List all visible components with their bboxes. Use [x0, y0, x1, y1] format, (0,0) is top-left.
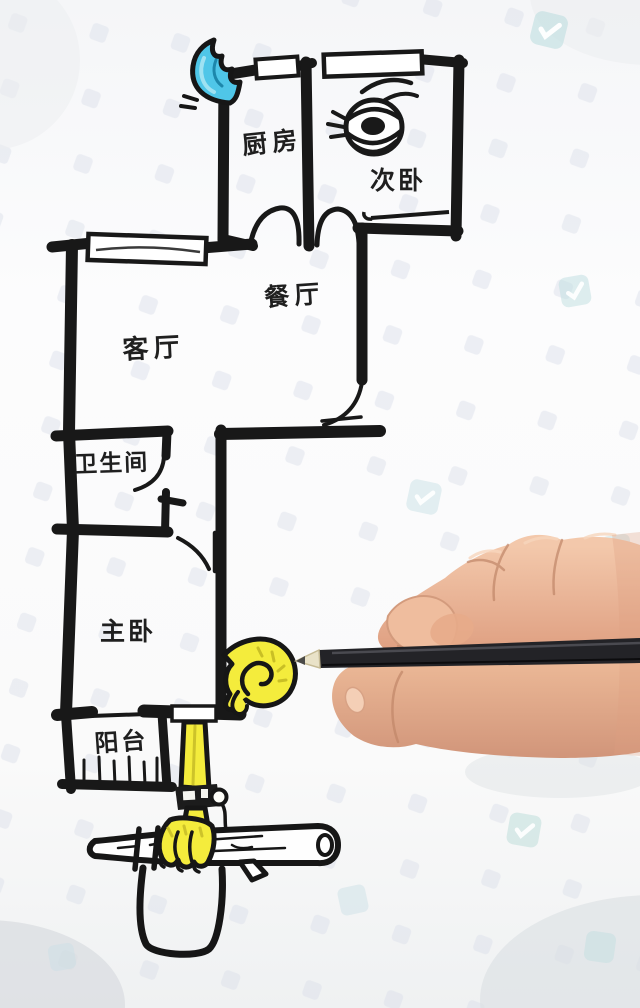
illustration-canvas: 厨房 次卧 餐厅 客厅 卫生间 主卧 阳台 [0, 0, 640, 1008]
cord-knot [212, 790, 227, 805]
bedroom2-window [324, 51, 423, 76]
master-bottom-window [172, 706, 216, 721]
bird-foot-claw [159, 818, 214, 867]
room-label-balcony: 阳台 [94, 726, 150, 758]
living-window [88, 234, 207, 264]
room-label-dining: 餐厅 [264, 280, 326, 312]
left-outer-wall [66, 245, 73, 713]
thumb-and-palm [332, 660, 640, 758]
room-label-living: 客厅 [122, 331, 186, 364]
kitchen-window [255, 57, 298, 79]
balcony-right-wall [162, 714, 167, 787]
bedroom2-right-wall [456, 60, 459, 236]
room-label-bathroom: 卫生间 [74, 449, 150, 478]
balcony-sliding-line [91, 714, 147, 716]
room-label-master-bedroom: 主卧 [100, 618, 156, 646]
kitchen-bedroom-divider-wall [306, 62, 309, 246]
room-label-second-bedroom: 次卧 [370, 167, 426, 195]
